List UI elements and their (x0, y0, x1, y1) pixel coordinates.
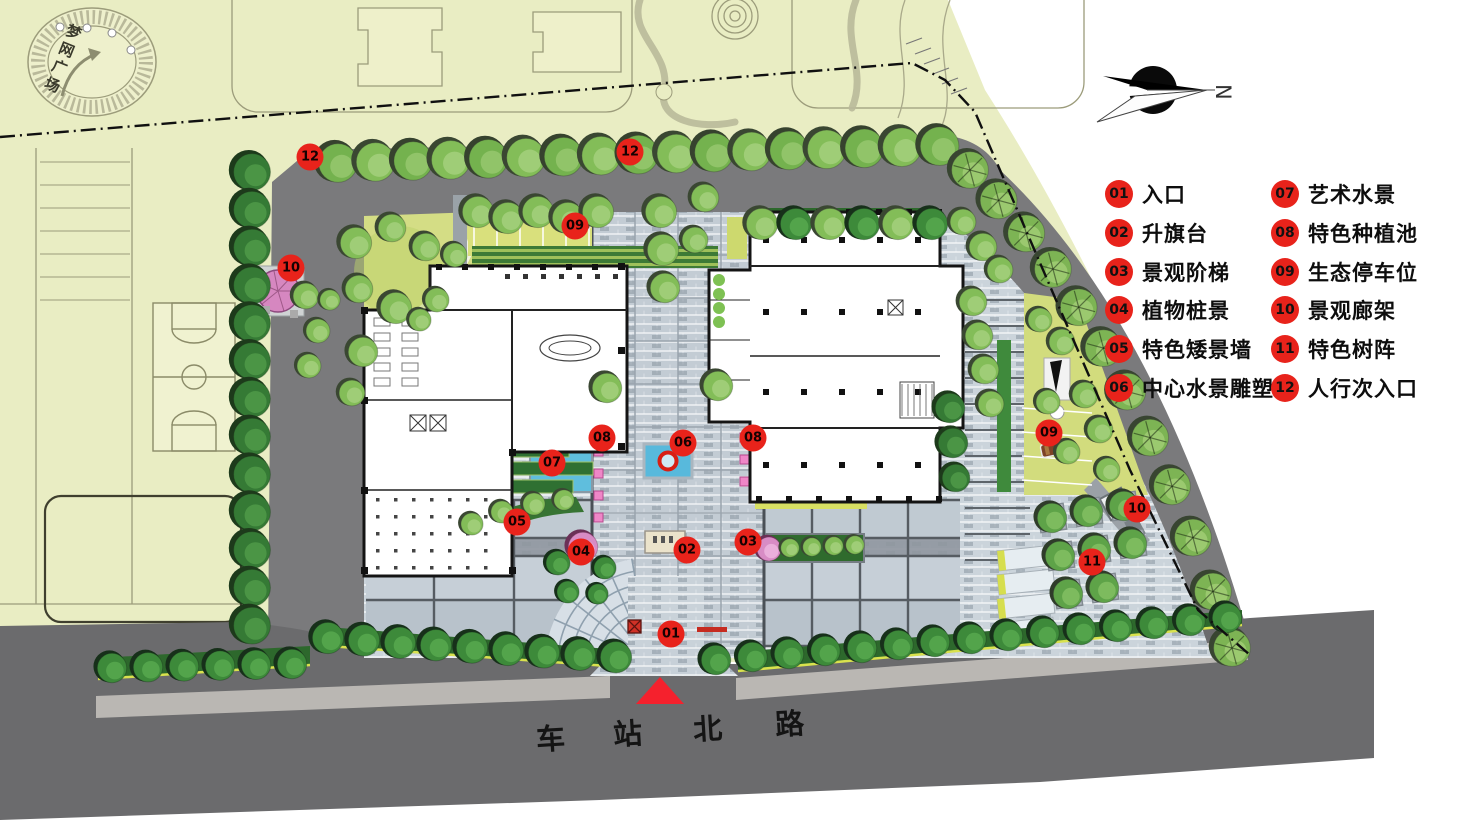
legend-item-number: 08 (1271, 219, 1299, 247)
legend-item-number: 06 (1105, 374, 1133, 402)
road-name-char: 站 (612, 710, 644, 754)
legend-item: 08特色种植池 (1271, 219, 1418, 247)
legend-item-label: 特色矮景墙 (1142, 334, 1252, 364)
plan-marker-07: 07 (539, 450, 566, 477)
road-name-char: 北 (692, 705, 724, 749)
legend-item: 06中心水景雕塑 (1105, 374, 1274, 402)
context-plaza (28, 8, 156, 116)
plan-marker-02: 02 (674, 537, 701, 564)
legend-item-label: 入口 (1142, 179, 1186, 209)
legend-item-number: 02 (1105, 219, 1133, 247)
north-arrow: N (1095, 52, 1255, 132)
legend-item-number: 09 (1271, 258, 1299, 286)
legend-item: 11特色树阵 (1271, 335, 1418, 363)
plan-marker-09: 09 (1036, 420, 1063, 447)
legend-item-number: 04 (1105, 296, 1133, 324)
legend-item: 03景观阶梯 (1105, 258, 1274, 286)
legend-item-label: 人行次入口 (1308, 373, 1418, 403)
plan-marker-05: 05 (504, 509, 531, 536)
plan-marker-04: 04 (568, 539, 595, 566)
road-name-char: 路 (774, 700, 806, 744)
north-label: N (1211, 84, 1235, 100)
legend-item-label: 中心水景雕塑 (1142, 373, 1274, 403)
plan-marker-12: 12 (297, 144, 324, 171)
plan-marker-06: 06 (670, 430, 697, 457)
plan-marker-11: 11 (1079, 549, 1106, 576)
road-name-char: 车 (535, 715, 567, 759)
plan-marker-01: 01 (658, 621, 685, 648)
legend-item-number: 11 (1271, 335, 1299, 363)
legend-item-number: 05 (1105, 335, 1133, 363)
legend-item: 01入口 (1105, 180, 1274, 208)
legend-item-label: 景观阶梯 (1142, 257, 1230, 287)
legend-item-label: 植物桩景 (1142, 295, 1230, 325)
legend-item: 07艺术水景 (1271, 180, 1418, 208)
legend-item-label: 特色树阵 (1308, 334, 1396, 364)
plan-marker-08: 08 (740, 425, 767, 452)
basketball-court (153, 303, 235, 451)
legend-item-number: 01 (1105, 180, 1133, 208)
legend-item: 12人行次入口 (1271, 374, 1418, 402)
path-node (656, 84, 672, 100)
legend-item: 02升旗台 (1105, 219, 1274, 247)
legend-item: 09生态停车位 (1271, 258, 1418, 286)
legend-item: 04植物桩景 (1105, 296, 1274, 324)
legend-item: 10景观廊架 (1271, 296, 1418, 324)
legend-item-number: 03 (1105, 258, 1133, 286)
plan-marker-08: 08 (589, 425, 616, 452)
legend-item-label: 升旗台 (1142, 218, 1208, 248)
plan-marker-10: 10 (278, 255, 305, 282)
plan-marker-09: 09 (562, 213, 589, 240)
legend-item-label: 艺术水景 (1308, 179, 1396, 209)
legend-item-label: 特色种植池 (1308, 218, 1418, 248)
legend-item-number: 12 (1271, 374, 1299, 402)
plan-marker-03: 03 (735, 529, 762, 556)
legend-item-label: 生态停车位 (1308, 257, 1418, 287)
plan-marker-12: 12 (617, 139, 644, 166)
site-plan-page: N 梦网广场 车站北路 01入口02升旗台03景观阶梯04植物桩景05特色矮景墙… (0, 0, 1472, 828)
plan-marker-10: 10 (1124, 496, 1151, 523)
legend-item-number: 07 (1271, 180, 1299, 208)
legend-item-number: 10 (1271, 296, 1299, 324)
legend-item-label: 景观廊架 (1308, 295, 1396, 325)
legend-item: 05特色矮景墙 (1105, 335, 1274, 363)
